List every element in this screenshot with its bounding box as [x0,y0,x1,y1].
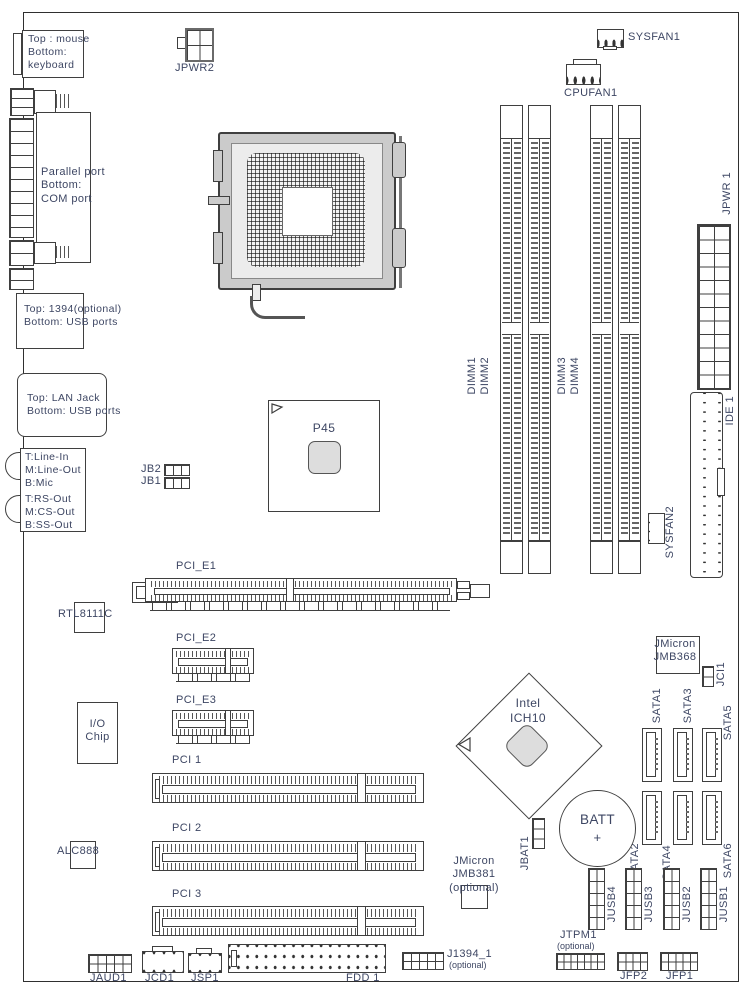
pcie1-right-tab-1 [457,581,470,589]
jaud1-header [88,954,132,973]
jtpm1-optional-label: (optional) [557,941,595,952]
sata3-label: SATA3 [682,688,694,723]
jsp1-connector [188,953,222,973]
pcie1-right-tab-2 [457,592,470,600]
cpu-socket-left-clip-1 [213,150,223,182]
jfp2-header [617,952,648,971]
jfp2-label: JFP2 [620,970,647,983]
pci2-slot [152,841,424,871]
dimm2-top-latch [528,105,551,139]
jmb368-label: JMicron JMB368 [644,638,706,665]
cpu-socket-right-clip-2 [392,228,406,268]
pcie3-solder-tabs [176,736,250,744]
dimm4-label: DIMM4 [569,357,581,394]
fdd1-connector [228,944,386,973]
dimm1-top-latch [500,105,523,139]
pci3-slot [152,906,424,936]
rear-connector-stub-1 [10,88,34,116]
jcd1-connector [142,951,184,973]
audio-jack-bottom [5,495,21,523]
sata6-connector [702,791,722,845]
jusb1-label: JUSB1 [718,886,730,922]
j1394-optional-label: (optional) [449,960,487,971]
jaud1-label: JAUD1 [90,972,127,985]
jpwr1-label: JPWR 1 [721,172,733,215]
sata6-label: SATA6 [722,843,734,878]
pci3-label: PCI 3 [172,888,202,901]
jbat1-header [532,818,545,849]
sata1-connector [642,728,662,782]
pcie1-solder-tabs [150,602,450,611]
sysfan1-label: SYSFAN1 [628,31,680,44]
ps2-port-label: Top : mouse Bottom: keyboard [28,33,90,71]
dimm1-body [500,138,523,541]
sata2-connector [642,791,662,845]
pci2-label: PCI 2 [172,822,202,835]
dimm3-body [590,138,613,541]
jbat1-label: JBAT1 [519,836,531,870]
sata4-connector [673,791,693,845]
audio-ports-label-bottom: T:RS-Out M:CS-Out B:SS-Out [25,493,75,531]
jpwr2-label: JPWR2 [175,62,214,75]
rear-connector-comb-2 [56,246,70,258]
lan-chip-label: RTL8111C [58,608,113,621]
pcie1-label: PCI_E1 [176,560,216,573]
pcie2-label: PCI_E2 [176,632,216,645]
dimm2-label: DIMM2 [479,357,491,394]
jusb4-header [588,868,605,930]
rear-connector-stub-2 [34,90,56,114]
cpu-socket-right-clip-1 [392,142,406,178]
jusb3-label: JUSB3 [643,886,655,922]
audio-jack-top [5,452,21,480]
rear-connector-comb-1 [56,94,70,108]
pcie3-label: PCI_E3 [176,694,216,707]
dimm2-body [528,138,551,541]
dimm1-bottom-latch [500,541,523,574]
jusb2-header [663,868,680,930]
sata3-connector [673,728,693,782]
rear-connector-stub-5 [9,268,34,290]
dimm4-top-latch [618,105,641,139]
fdd1-notch [231,950,237,967]
jci1-label: JCI1 [715,662,727,686]
sysfan1-notch [603,46,617,50]
pcie1-right-latch [470,584,490,598]
cpu-socket-center-hole [282,187,333,236]
jusb3-header [625,868,642,930]
battery [559,790,636,867]
northbridge-die [308,441,341,474]
sata1-label: SATA1 [651,688,663,723]
io-chip-label: I/O Chip [77,718,118,745]
northbridge-corner-marker [271,403,284,415]
pci1-slot [152,773,424,803]
jpwr2-connector [185,28,214,62]
motherboard-diagram: Top : mouse Bottom: keyboard Parallel po… [0,0,752,992]
dimm1-label: DIMM1 [466,357,478,394]
cpu-socket-left-pin [208,196,230,205]
pcie1-slot [145,578,457,602]
jsp1-label: JSP1 [191,972,219,985]
jfp1-header [660,952,698,971]
dimm2-bottom-latch [528,541,551,574]
jmb381-label: JMicron JMB381 (optional) [443,855,505,895]
cpu-socket-left-clip-2 [213,232,223,264]
j1394-header [402,952,444,970]
dsub-serration [9,118,34,238]
cpufan1-label: CPUFAN1 [564,87,618,100]
jusb1-header [700,868,717,930]
lan-usb-label: Top: LAN Jack Bottom: USB ports [27,392,121,418]
dimm3-bottom-latch [590,541,613,574]
northbridge-label: P45 [268,421,380,436]
ide1-label: IDE 1 [724,396,736,426]
dimm3-top-latch [590,105,613,139]
firewire-usb-label: Top: 1394(optional) Bottom: USB ports [24,303,122,329]
rear-connector-stub-3 [9,240,34,266]
sata5-connector [702,728,722,782]
dimm4-bottom-latch [618,541,641,574]
cpufan1-connector [566,64,601,85]
southbridge-corner-marker [458,737,472,752]
sysfan2-label: SYSFAN2 [664,506,676,558]
pci1-label: PCI 1 [172,754,202,767]
pcie2-solder-tabs [176,674,250,682]
dimm4-body [618,138,641,541]
jb2-header [164,464,190,476]
pcie3-slot [172,710,254,736]
sysfan2-connector [648,513,665,544]
sata5-label: SATA5 [722,705,734,740]
jcd1-label: JCD1 [145,972,174,985]
jusb4-label: JUSB4 [606,886,618,922]
jb1-label: JB1 [141,475,161,488]
southbridge-label: Intel ICH10 [455,696,601,725]
jfp1-label: JFP1 [666,970,693,983]
pcie2-slot [172,648,254,674]
cpu-socket-lever [250,296,305,319]
battery-plus-label: + [559,830,636,846]
jb1-header [164,477,190,489]
audio-ports-label-top: T:Line-In M:Line-Out B:Mic [25,451,81,489]
battery-label: BATT [559,812,636,828]
jtpm1-header [556,953,605,970]
jusb2-label: JUSB2 [681,886,693,922]
audio-chip-label: ALC888 [57,845,99,858]
jci1-header [702,666,714,687]
dimm3-label: DIMM3 [556,357,568,394]
rear-connector-stub-4 [34,242,56,264]
parallel-port-label: Parallel port Bottom: COM port [41,166,105,206]
ide1-notch [717,468,725,496]
jpwr1-connector [697,224,731,390]
ps2-port-tab [13,33,22,75]
fdd1-label: FDD 1 [346,972,380,985]
